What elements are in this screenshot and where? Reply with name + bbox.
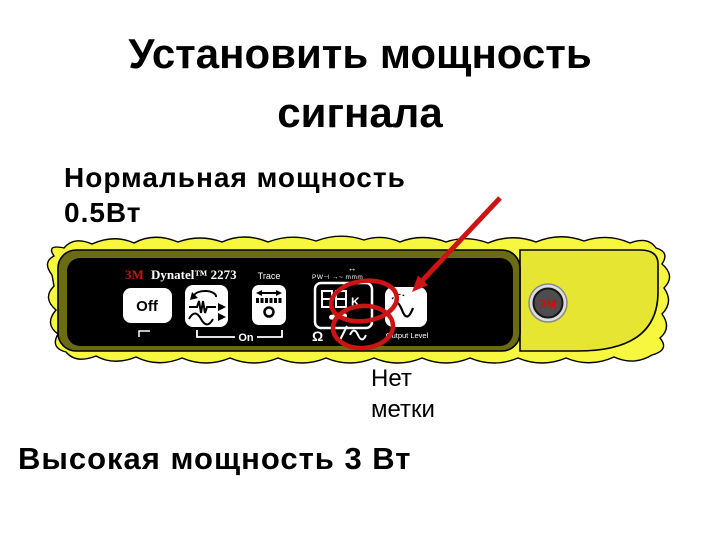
- on-label: On: [238, 332, 254, 344]
- ohm-symbol: Ω: [312, 328, 323, 344]
- slide-title-line1: Установить мощность: [0, 24, 720, 83]
- model-text: Dynatel™ 2273: [151, 267, 237, 282]
- device-figure: 3M Dynatel™ 2273 Off Trace On ↔ PW⊣ →~ m…: [30, 180, 690, 370]
- device-brand-text: 3M Dynatel™ 2273: [125, 267, 237, 282]
- slide-title-line2: сигнала: [0, 83, 720, 142]
- brand-3m-text: 3M: [125, 267, 144, 282]
- width-arrow-icon: ↔: [348, 263, 357, 273]
- high-power-caption: Высокая мощность 3 Вт: [18, 441, 578, 477]
- trace-button[interactable]: [252, 285, 286, 325]
- logo-3m-text: 3M: [540, 297, 557, 311]
- no-mark-caption: Нет метки: [371, 363, 531, 425]
- slide-title: Установить мощность сигнала: [0, 24, 720, 142]
- off-button-label: Off: [136, 298, 159, 315]
- trace-label: Trace: [258, 271, 281, 281]
